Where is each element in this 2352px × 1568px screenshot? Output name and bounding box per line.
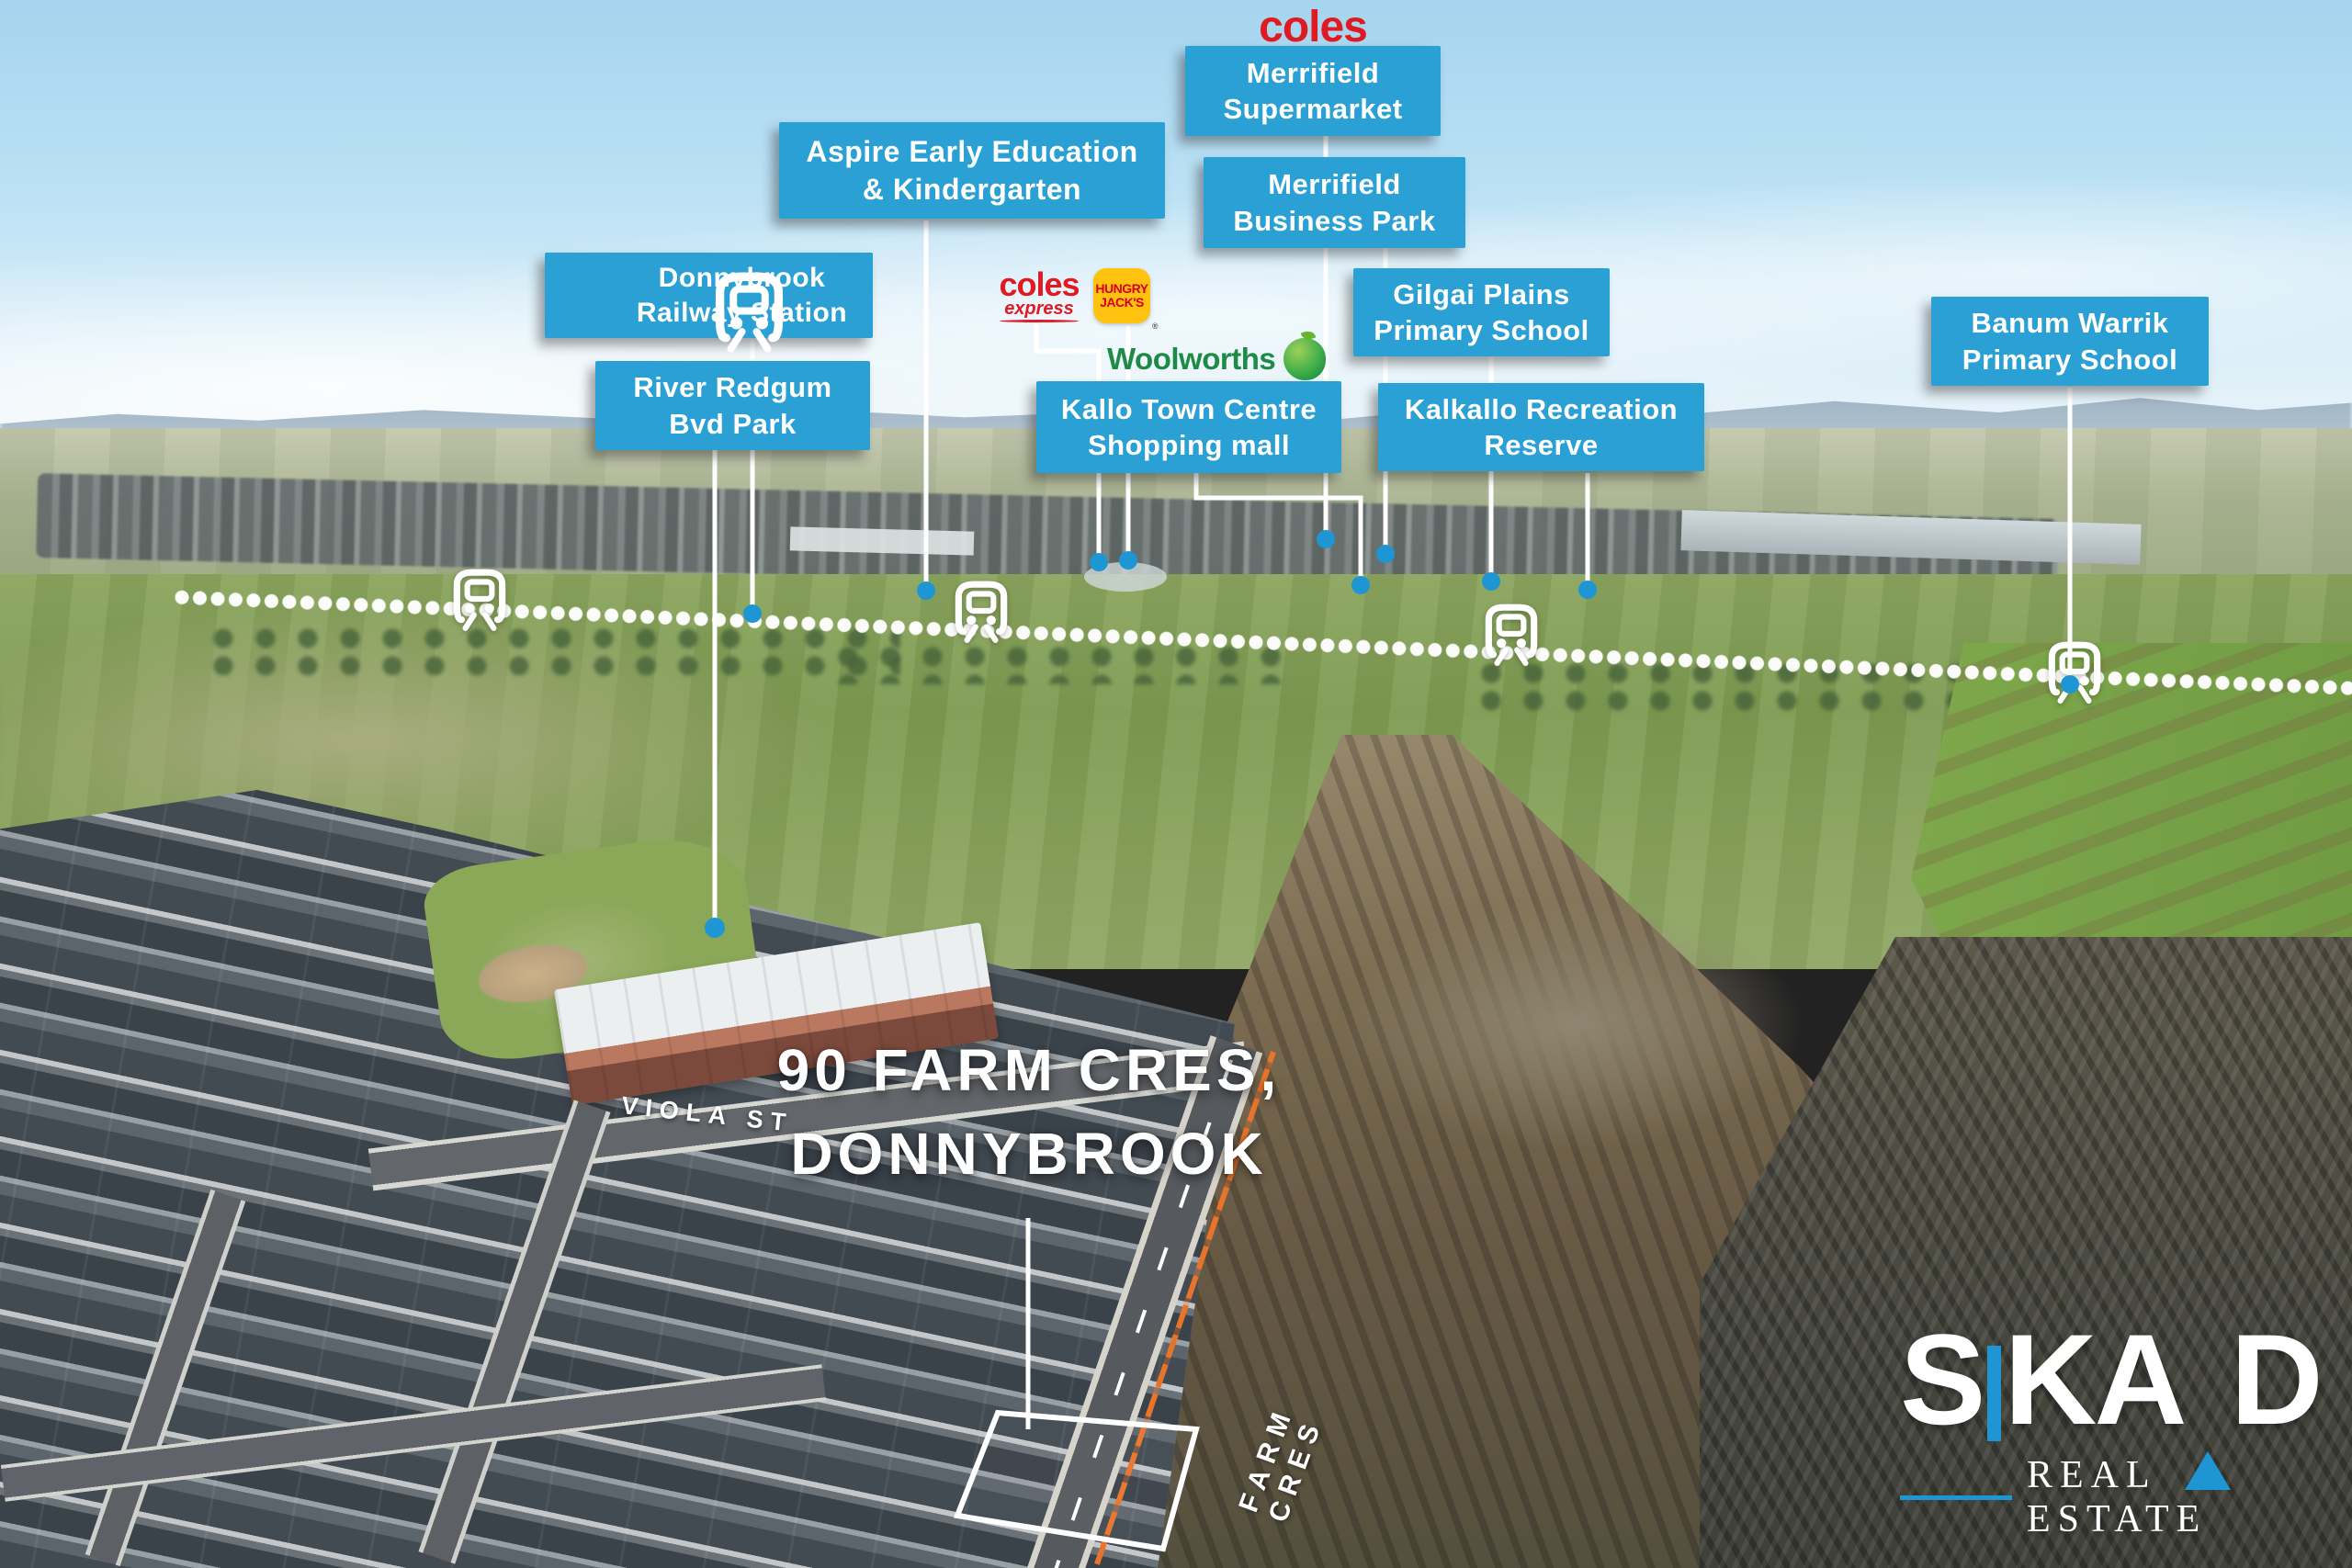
- label-line: Supermarket: [1185, 91, 1441, 127]
- location-dot: [705, 918, 725, 938]
- location-dot: [1317, 530, 1335, 548]
- label-line: Merrifield: [1185, 55, 1441, 91]
- skad-blue-bar: [1987, 1346, 2001, 1441]
- location-dot: [1090, 553, 1108, 571]
- label-line: Merrifield: [1204, 166, 1465, 202]
- leader-line: [1196, 473, 1361, 585]
- skad-tagline-rule: [1900, 1495, 2012, 1500]
- property-outline: [957, 1413, 1196, 1549]
- label-kalkallo-reserve: Kalkallo Recreation Reserve: [1378, 383, 1704, 471]
- label-line: Business Park: [1204, 203, 1465, 239]
- coles-express-logo: coles express: [989, 270, 1090, 322]
- label-line: Shopping mall: [1036, 427, 1341, 463]
- location-dot: [1376, 545, 1395, 563]
- label-donnybrook-station: Donnybrook Railway Station: [545, 253, 873, 338]
- hungry-jacks-logo: HUNGRY JACK'S ®: [1093, 268, 1150, 323]
- label-line: Kallo Town Centre: [1036, 391, 1341, 427]
- aerial-marketing-image: Aspire Early Education & Kindergarten co…: [0, 0, 2352, 1568]
- label-line: Primary School: [1353, 312, 1610, 348]
- label-line: Banum Warrik: [1931, 305, 2209, 341]
- label-line: Reserve: [1378, 427, 1704, 463]
- property-address-title: 90 FARM CRES, DONNYBROOK: [698, 1029, 1360, 1196]
- address-line-1: 90 FARM CRES,: [698, 1029, 1360, 1112]
- label-line: Bvd Park: [595, 406, 870, 442]
- location-dot: [2061, 675, 2079, 694]
- location-dot: [1119, 551, 1137, 570]
- label-river-redgum-park: River Redgum Bvd Park: [595, 361, 870, 450]
- label-line: & Kindergarten: [779, 171, 1165, 208]
- label-line: Primary School: [1931, 342, 2209, 378]
- skad-logo: S K A D REAL ESTATE: [1900, 1315, 2341, 1541]
- woolworths-logo: Woolworths: [1107, 338, 1326, 380]
- label-line: Kalkallo Recreation: [1378, 391, 1704, 427]
- label-merrifield-supermarket: Merrifield Supermarket: [1185, 46, 1441, 136]
- label-gilgai-plains-school: Gilgai Plains Primary School: [1353, 268, 1610, 356]
- address-line-2: DONNYBROOK: [698, 1112, 1360, 1196]
- label-kallo-town-centre: Kallo Town Centre Shopping mall: [1036, 381, 1341, 473]
- location-dot: [917, 581, 935, 600]
- location-dot: [1351, 576, 1370, 594]
- woolworths-apple-icon: [1283, 338, 1326, 380]
- skad-wordmark: S K A D: [1900, 1315, 2341, 1444]
- coles-logo: coles: [1185, 2, 1441, 52]
- label-line: River Redgum: [595, 369, 870, 405]
- location-dot: [1482, 572, 1500, 591]
- label-aspire-kindergarten: Aspire Early Education & Kindergarten: [779, 122, 1165, 219]
- coles-express-underline: [1000, 320, 1079, 322]
- location-dot: [743, 604, 762, 623]
- label-merrifield-business-park: Merrifield Business Park: [1204, 157, 1465, 248]
- skad-tagline: REAL ESTATE: [2027, 1453, 2341, 1541]
- location-dot: [1578, 581, 1597, 599]
- label-line: Gilgai Plains: [1353, 276, 1610, 312]
- label-banum-warrik-school: Banum Warrik Primary School: [1931, 297, 2209, 386]
- train-icon: [560, 268, 611, 323]
- label-line: Aspire Early Education: [779, 133, 1165, 170]
